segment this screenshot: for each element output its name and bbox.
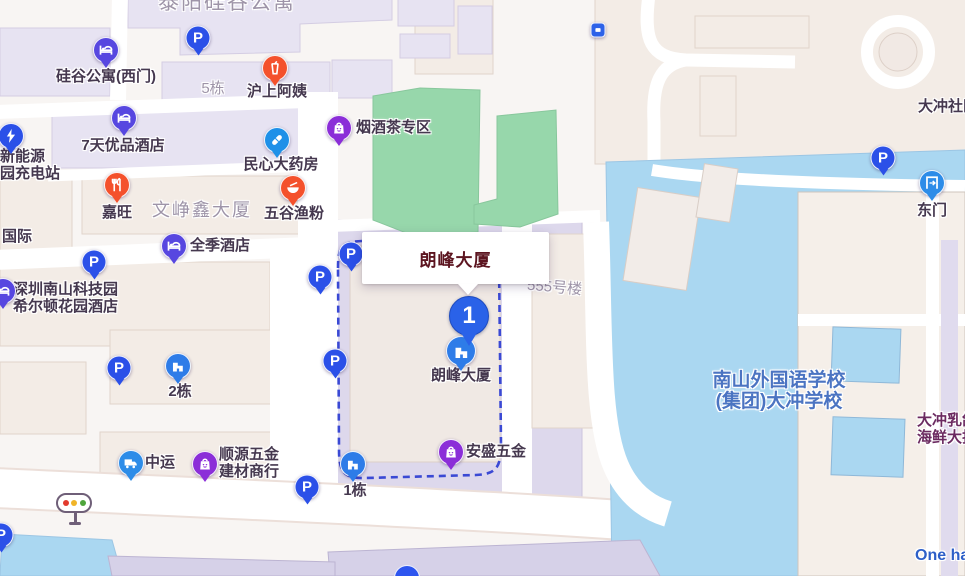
destination-pin[interactable]: 1 — [449, 296, 489, 355]
label-hilton-garden-inn[interactable]: 深圳南山科技园希尔顿花园酒店 — [13, 282, 118, 316]
transit-icon — [591, 23, 606, 38]
traffic-light-base — [69, 522, 81, 525]
charging-icon — [0, 123, 24, 149]
marker-wugu-yufen[interactable] — [280, 175, 306, 201]
label-minxin-pharmacy[interactable]: 民心大药房 — [243, 157, 318, 174]
marker-pointer — [334, 139, 344, 146]
label-7days-premium-hotel[interactable]: 7天优品酒店 — [81, 138, 164, 155]
marker-pointer — [878, 169, 888, 176]
label-east-gate[interactable]: 东门 — [917, 203, 947, 220]
marker-zhongyun[interactable] — [118, 450, 144, 476]
gate-icon — [919, 170, 945, 196]
map-text-dachong-community: 大冲社区 — [918, 99, 965, 116]
truck-icon — [118, 450, 144, 476]
marker-7days-premium-hotel[interactable] — [111, 105, 137, 131]
map-text-wenzhengxin-building: 文峥鑫大厦 — [152, 200, 252, 220]
info-window-pointer — [458, 284, 478, 295]
marker-pointer — [270, 79, 280, 86]
marker-transit-stop[interactable] — [591, 23, 606, 38]
label-charging-station[interactable]: 新能源园充电站 — [0, 149, 60, 183]
info-window[interactable]: 朗峰大厦 — [362, 232, 549, 284]
traffic-light-lamps — [56, 493, 92, 513]
map-text-5dong: 5栋 — [201, 81, 224, 98]
label-guigu-apartment-west-gate[interactable]: 硅谷公寓(西门) — [56, 69, 156, 86]
marker-east-gate[interactable] — [919, 170, 945, 196]
label-yanjiucha-zone[interactable]: 烟酒茶专区 — [356, 120, 431, 137]
map-text-nanshan-school: 南山外国语学校(集团)大冲学校 — [712, 370, 845, 413]
parking-icon: P — [323, 349, 348, 374]
marker-pointer — [193, 49, 203, 56]
marker-parking-west-2[interactable]: P — [323, 349, 348, 374]
marker-parking-langfeng-nw[interactable]: P — [339, 242, 364, 267]
marker-pointer — [173, 377, 183, 384]
traffic-light-stem — [74, 513, 77, 522]
marker-pointer — [346, 265, 356, 272]
parking-icon: P — [186, 26, 211, 51]
marker-pointer — [200, 475, 210, 482]
marker-guigu-apartment-west-gate[interactable] — [93, 37, 119, 63]
restaurant-icon — [104, 172, 130, 198]
map-text-dachong-restaurant: 大冲乳鸽海鲜大排档 — [917, 413, 965, 447]
destination-pin-tail — [460, 331, 478, 355]
hotel-icon — [0, 278, 16, 304]
marker-yanjiucha-zone[interactable] — [326, 115, 352, 141]
shopping-icon — [438, 439, 464, 465]
label-zhongyun[interactable]: 中运 — [145, 455, 175, 472]
marker-pointer — [302, 498, 312, 505]
parking-icon: P — [871, 146, 896, 171]
marker-pointer — [112, 196, 122, 203]
marker-hilton-garden-inn[interactable] — [0, 278, 16, 304]
marker-pointer — [0, 546, 6, 553]
label-building-2dong[interactable]: 2栋 — [168, 384, 191, 401]
parking-icon: P — [295, 475, 320, 500]
pharmacy-icon — [264, 127, 290, 153]
marker-pointer — [0, 302, 8, 309]
hotel-icon — [111, 105, 137, 131]
drink-icon — [262, 55, 288, 81]
parking-icon: P — [0, 523, 14, 548]
marker-pointer — [119, 129, 129, 136]
marker-parking-south[interactable]: P — [295, 475, 320, 500]
parking-icon: P — [339, 242, 364, 267]
poi-layer: P硅谷公寓(西门)沪上阿姨7天优品酒店新能源园充电站民心大药房嘉旺五谷渔粉全季酒… — [0, 0, 965, 576]
marker-parking-east[interactable]: P — [871, 146, 896, 171]
info-window-title: 朗峰大厦 — [420, 246, 492, 271]
marker-pointer — [6, 147, 16, 154]
hotel-icon — [93, 37, 119, 63]
building-icon — [165, 353, 191, 379]
building-icon — [340, 451, 366, 477]
marker-ansheng-hardware[interactable] — [438, 439, 464, 465]
destination-pin-head: 1 — [449, 296, 489, 336]
hotel-icon — [161, 233, 187, 259]
label-quanji-hotel[interactable]: 全季酒店 — [190, 238, 250, 255]
label-ansheng-hardware[interactable]: 安盛五金 — [466, 444, 526, 461]
marker-parking-2dong[interactable]: P — [107, 356, 132, 381]
parking-icon: P — [82, 250, 107, 275]
shopping-icon — [192, 451, 218, 477]
label-hushang-ayi[interactable]: 沪上阿姨 — [247, 84, 307, 101]
marker-pointer — [348, 475, 358, 482]
marker-pointer — [101, 61, 111, 68]
marker-pointer — [126, 474, 136, 481]
label-wugu-yufen[interactable]: 五谷渔粉 — [264, 206, 324, 223]
map-text-guoji-partial: 国际 — [2, 229, 32, 246]
destination-pin-number: 1 — [462, 302, 475, 330]
map-text-taiyang-complex: 泰阳硅谷公寓 — [158, 0, 296, 15]
marker-pointer — [288, 199, 298, 206]
label-building-1dong[interactable]: 1栋 — [343, 483, 366, 500]
label-shunyuan-hardware[interactable]: 顺源五金建材商行 — [219, 447, 279, 481]
label-jiawang[interactable]: 嘉旺 — [102, 205, 132, 222]
marker-pointer — [446, 463, 456, 470]
bowl-icon — [280, 175, 306, 201]
marker-shunyuan-hardware[interactable] — [192, 451, 218, 477]
marker-parking-taiyang[interactable]: P — [186, 26, 211, 51]
marker-building-2dong[interactable] — [165, 353, 191, 379]
marker-hushang-ayi[interactable] — [262, 55, 288, 81]
traffic-light-icon — [56, 493, 94, 525]
parking-icon: P — [308, 265, 333, 290]
traffic-light-red — [63, 500, 69, 506]
marker-charging-station[interactable] — [0, 123, 24, 149]
map-text-one-ha: One ha — [915, 547, 965, 565]
marker-parking-west-1[interactable]: P — [308, 265, 333, 290]
marker-pointer — [315, 288, 325, 295]
map-viewport[interactable]: P硅谷公寓(西门)沪上阿姨7天优品酒店新能源园充电站民心大药房嘉旺五谷渔粉全季酒… — [0, 0, 965, 576]
shopping-icon — [326, 115, 352, 141]
marker-pointer — [927, 194, 937, 201]
marker-pointer — [456, 364, 466, 371]
marker-parking-bottom-left[interactable]: P — [0, 523, 14, 548]
marker-jiawang[interactable] — [104, 172, 130, 198]
traffic-light-green — [80, 500, 86, 506]
marker-building-1dong[interactable] — [340, 451, 366, 477]
marker-parking-wenzhengxin[interactable]: P — [82, 250, 107, 275]
traffic-light-yellow — [71, 500, 77, 506]
marker-pointer — [89, 273, 99, 280]
marker-minxin-pharmacy[interactable] — [264, 127, 290, 153]
marker-pointer — [114, 379, 124, 386]
parking-icon: P — [107, 356, 132, 381]
marker-pointer — [330, 372, 340, 379]
marker-quanji-hotel[interactable] — [161, 233, 187, 259]
marker-pointer — [272, 151, 282, 158]
marker-pointer — [169, 257, 179, 264]
